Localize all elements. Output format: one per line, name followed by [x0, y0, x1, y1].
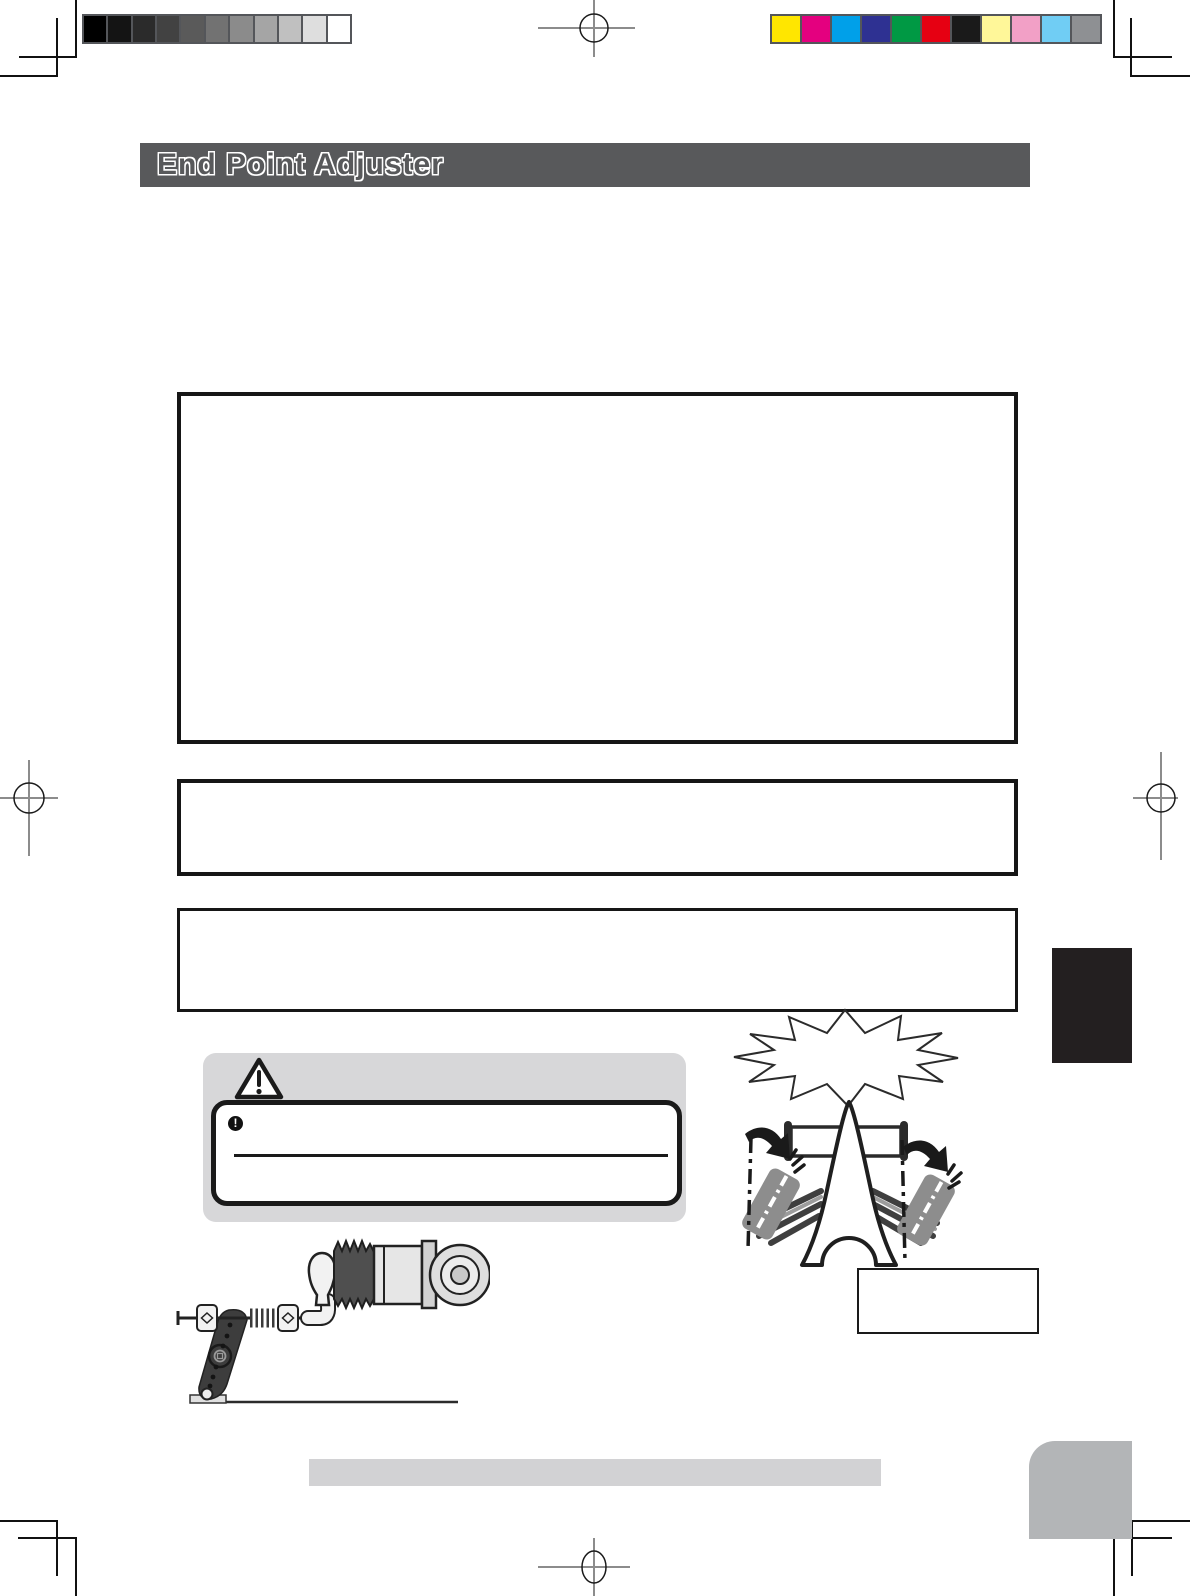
color-swatch: [204, 16, 228, 42]
color-swatch: [253, 16, 277, 42]
color-swatch: [980, 16, 1010, 42]
content-box-note-2: [177, 908, 1018, 1012]
servo-saver-body: [374, 1241, 490, 1308]
color-swatch: [1010, 16, 1040, 42]
color-swatch: [84, 16, 106, 42]
ball-link: [308, 1253, 335, 1318]
color-swatch: [830, 16, 860, 42]
color-swatch: [179, 16, 203, 42]
page-index-tab: [1052, 948, 1132, 1063]
color-swatch: [860, 16, 890, 42]
color-swatch: [1040, 16, 1070, 42]
color-swatch: [155, 16, 179, 42]
caution-panel: !: [203, 1053, 686, 1222]
bellows-boot: [334, 1241, 374, 1308]
color-swatch: [950, 16, 980, 42]
car-caption-box: [857, 1268, 1039, 1334]
color-swatch: [326, 16, 350, 42]
grayscale-calibration-bar: [82, 14, 352, 44]
color-swatch: [228, 16, 252, 42]
content-box-note-1: [177, 779, 1018, 876]
caution-divider-line: [234, 1154, 668, 1157]
footer-highlight-bar: [309, 1459, 881, 1486]
color-swatch: [131, 16, 155, 42]
color-swatch: [890, 16, 920, 42]
warning-triangle-icon: [233, 1056, 285, 1102]
color-swatch: [277, 16, 301, 42]
alert-circle-icon: !: [228, 1116, 243, 1131]
color-swatch: [920, 16, 950, 42]
section-title-bar: End Point Adjuster: [140, 143, 1030, 187]
servo-linkage-illustration: [170, 1225, 490, 1420]
color-swatch: [106, 16, 130, 42]
color-swatch: [772, 16, 800, 42]
caution-note-box: !: [211, 1100, 682, 1206]
color-swatch: [301, 16, 325, 42]
color-calibration-bar: [770, 14, 1102, 44]
color-swatch: [1070, 16, 1100, 42]
starburst-callout: [734, 1010, 958, 1106]
color-swatch: [800, 16, 830, 42]
manual-page: End Point Adjuster !: [0, 0, 1190, 1596]
page-corner-tab: [1029, 1441, 1132, 1539]
page-title: End Point Adjuster: [157, 148, 444, 182]
content-box-main: [177, 392, 1018, 744]
